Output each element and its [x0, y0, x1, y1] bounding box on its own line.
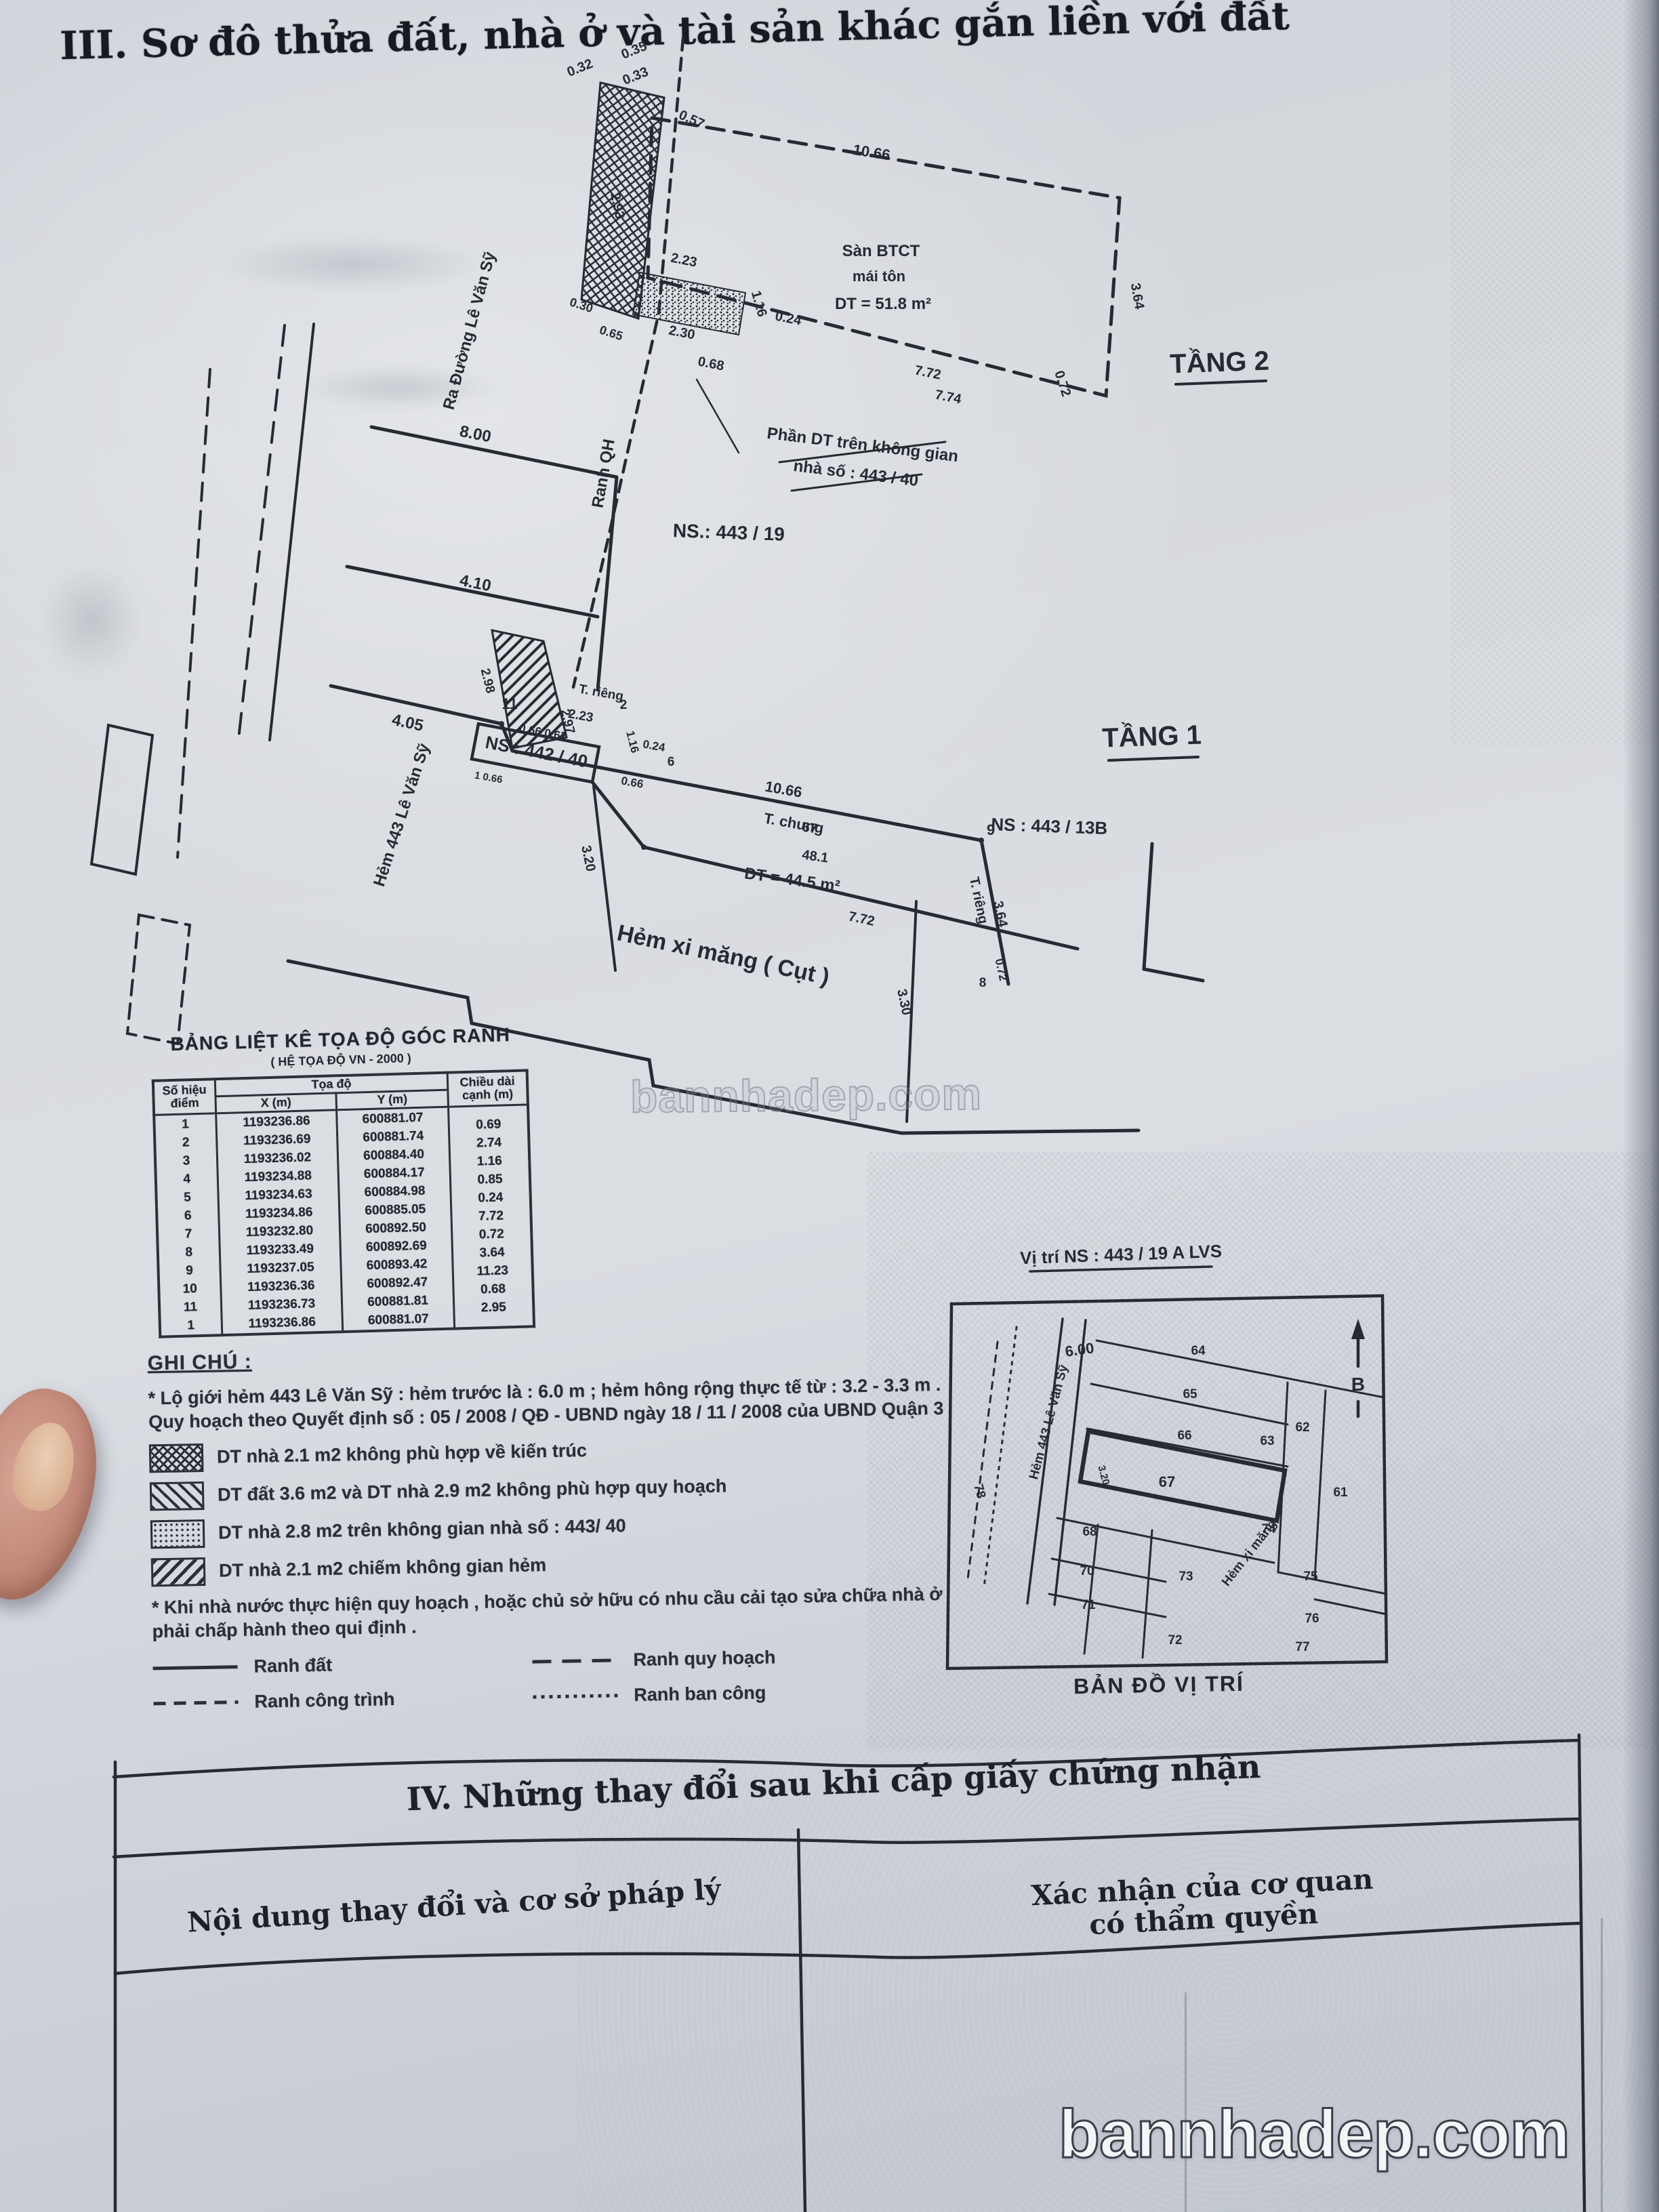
legend-item-text: DT nhà 2.1 m2 không phù hợp về kiến trúc — [217, 1439, 587, 1469]
crosshatch-swatch-icon — [149, 1443, 204, 1473]
line-legend-item: Ranh đất — [152, 1650, 533, 1681]
point-id: 3 — [155, 1151, 218, 1171]
edge-length: 0.69 — [449, 1104, 529, 1126]
notes-paragraph-2: * Khi nhà nước thực hiện quy hoạch , hoặ… — [152, 1582, 959, 1644]
point-id: 8 — [157, 1242, 220, 1263]
ink-bleed-smudge — [41, 562, 142, 678]
line-legend-label: Ranh đất — [253, 1654, 332, 1679]
point-id: 7 — [157, 1224, 220, 1244]
legend-item: DT đất 3.6 m2 và DT nhà 2.9 m2 không phù… — [150, 1468, 957, 1511]
paper-texture-right — [867, 1152, 1659, 1748]
hatch-legend: DT nhà 2.1 m2 không phù hợp về kiến trúc… — [149, 1430, 958, 1586]
coord-y: 600881.07 — [337, 1107, 449, 1129]
legend-item: DT nhà 2.8 m2 trên không gian nhà số : 4… — [150, 1506, 958, 1549]
dashed2-line-icon — [153, 1700, 238, 1705]
paper-crease — [1185, 1992, 1187, 2212]
ink-bleed-smudge — [217, 237, 488, 291]
notes-paragraph-1: * Lộ giới hẻm 443 Lê Văn Sỹ : hẻm trước … — [148, 1372, 955, 1435]
legend-item: DT nhà 2.1 m2 không phù hợp về kiến trúc — [149, 1430, 956, 1473]
solid-line-icon — [153, 1666, 238, 1671]
dotted-line-icon — [533, 1694, 617, 1698]
stipple-swatch-icon — [150, 1519, 205, 1549]
backdiag-swatch-icon — [151, 1557, 206, 1586]
coordinate-table: BẢNG LIỆT KÊ TỌA ĐỘ GÓC RANH ( HỆ TỌA ĐỘ… — [150, 1023, 538, 1338]
coord-y: 600881.07 — [342, 1309, 455, 1332]
point-id: 1 — [154, 1113, 216, 1134]
point-id: 11 — [159, 1297, 222, 1317]
watermark-bottom: bannhadep.com — [1059, 2095, 1570, 2173]
point-id: 1 — [160, 1315, 222, 1337]
line-legend-label: Ranh quy hoạch — [633, 1645, 776, 1672]
col-length-header: Chiều dài cạnh (m) — [447, 1070, 528, 1106]
dashed-line-icon — [532, 1659, 617, 1664]
point-id: 6 — [157, 1206, 219, 1226]
paper-crease — [1601, 1918, 1603, 2212]
photographed-cadastral-document: { "title": "III. Sơ đô thửa đất, nhà ở v… — [0, 0, 1659, 2212]
point-id: 4 — [155, 1169, 218, 1189]
point-id: 2 — [155, 1132, 217, 1153]
legend-item: DT nhà 2.1 m2 chiếm không gian hẻm — [151, 1544, 958, 1586]
line-legend-item: Ranh quy hoạch — [532, 1643, 912, 1674]
point-id: 5 — [156, 1187, 218, 1208]
legend-item-text: DT nhà 2.1 m2 chiếm không gian hẻm — [219, 1553, 547, 1583]
notes-section: GHI CHÚ : * Lộ giới hẻm 443 Lê Văn Sỹ : … — [147, 1336, 960, 1716]
coord-x: 1193236.86 — [222, 1312, 343, 1335]
ink-bleed-smudge — [298, 366, 501, 409]
legend-item-text: DT đất 3.6 m2 và DT nhà 2.9 m2 không phù… — [218, 1475, 727, 1508]
point-id: 9 — [158, 1261, 220, 1281]
coordinate-table-grid: Số hiệu điểm Tọa độ Chiều dài cạnh (m) X… — [152, 1069, 535, 1338]
paper-edge-shadow — [1622, 0, 1659, 2212]
watermark-center: bannhadep.com — [630, 1068, 983, 1123]
point-id: 10 — [159, 1279, 221, 1299]
col-point-header: Số hiệu điểm — [153, 1079, 216, 1115]
diag-swatch-icon — [150, 1481, 205, 1511]
location-map-caption: BẢN ĐỒ VỊ TRÍ — [1057, 1671, 1261, 1699]
line-legend-label: Ranh công trình — [254, 1687, 395, 1714]
legend-item-text: DT nhà 2.8 m2 trên không gian nhà số : 4… — [218, 1514, 626, 1545]
line-legend-label: Ranh ban công — [634, 1681, 766, 1707]
